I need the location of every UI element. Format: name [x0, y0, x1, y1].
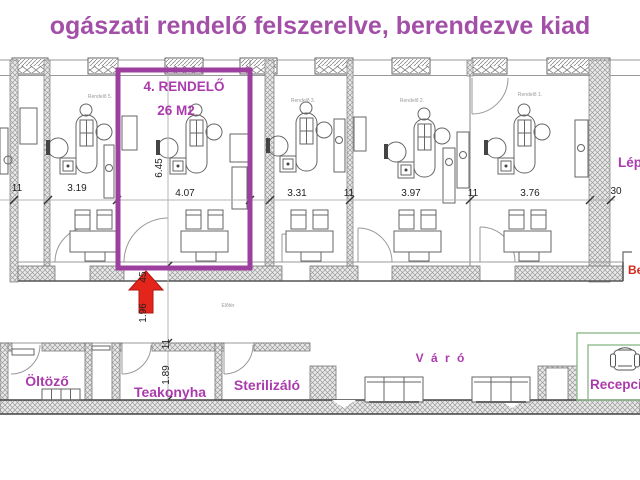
- dim-label: 11: [344, 189, 354, 199]
- dim-label: 3.19: [67, 184, 86, 194]
- page-title: ogászati rendelő felszerelve, berendezve…: [50, 14, 591, 39]
- room-furniture: [0, 102, 588, 261]
- reception-label: Recepció: [590, 378, 640, 392]
- sofa-icon: [365, 377, 423, 402]
- dim-label: 3.76: [520, 189, 539, 199]
- dim-label: 11: [468, 189, 478, 199]
- room-label: Rendelő 5.: [88, 95, 112, 100]
- door-arcs-top-wing: [55, 78, 515, 262]
- corridor-label: Előtér: [221, 304, 234, 309]
- dim-label-vertical: 1.96: [139, 303, 149, 322]
- waiting-area-label: V á r ó: [416, 352, 467, 364]
- dim-label: 4.07: [175, 189, 194, 199]
- room-label-kitchen: Teakonyha: [134, 385, 206, 399]
- room-label-dressing: Öltöző: [25, 374, 69, 388]
- reception-chair-icon: [611, 348, 640, 370]
- room-label: Rendelő 1.: [518, 93, 542, 98]
- room-label: Rendelő 3.: [291, 99, 315, 104]
- floor-plan-drawing: [0, 0, 640, 480]
- dim-label-vertical: 1.89: [162, 365, 172, 384]
- dim-label: 3.97: [401, 189, 420, 199]
- dental-chair-icon: [354, 108, 455, 261]
- dental-chair-icon: [266, 102, 345, 261]
- dim-label-vertical: 45: [139, 271, 149, 282]
- room-label-sterilizer: Sterilizáló: [234, 378, 300, 392]
- dental-chair-icon: [457, 104, 588, 261]
- dim-label-vertical: 11: [162, 339, 172, 349]
- highlight-room-area: 26 M2: [157, 104, 195, 118]
- dim-label: 3.31: [287, 189, 306, 199]
- locker-bench-icon: [42, 389, 80, 400]
- dim-label: 30: [610, 187, 621, 197]
- entrance-label: Bejárat: [628, 264, 640, 276]
- dental-chair-icon: [122, 104, 249, 261]
- dim-label: 11: [12, 184, 22, 194]
- bottom-wall-top-wing: [18, 262, 623, 281]
- partial-room-cabinets: [0, 108, 37, 174]
- highlight-room-name: 4. RENDELŐ: [143, 80, 224, 94]
- stairs-label: Lépcső: [618, 156, 640, 170]
- lower-wing-walls: [0, 343, 640, 414]
- room-label: Rendelő 2.: [400, 99, 424, 104]
- sofa-icon: [472, 377, 530, 402]
- dim-label-vertical: 6.45: [155, 158, 165, 177]
- floor-plan-page: ogászati rendelő felszerelve, berendezve…: [0, 0, 640, 480]
